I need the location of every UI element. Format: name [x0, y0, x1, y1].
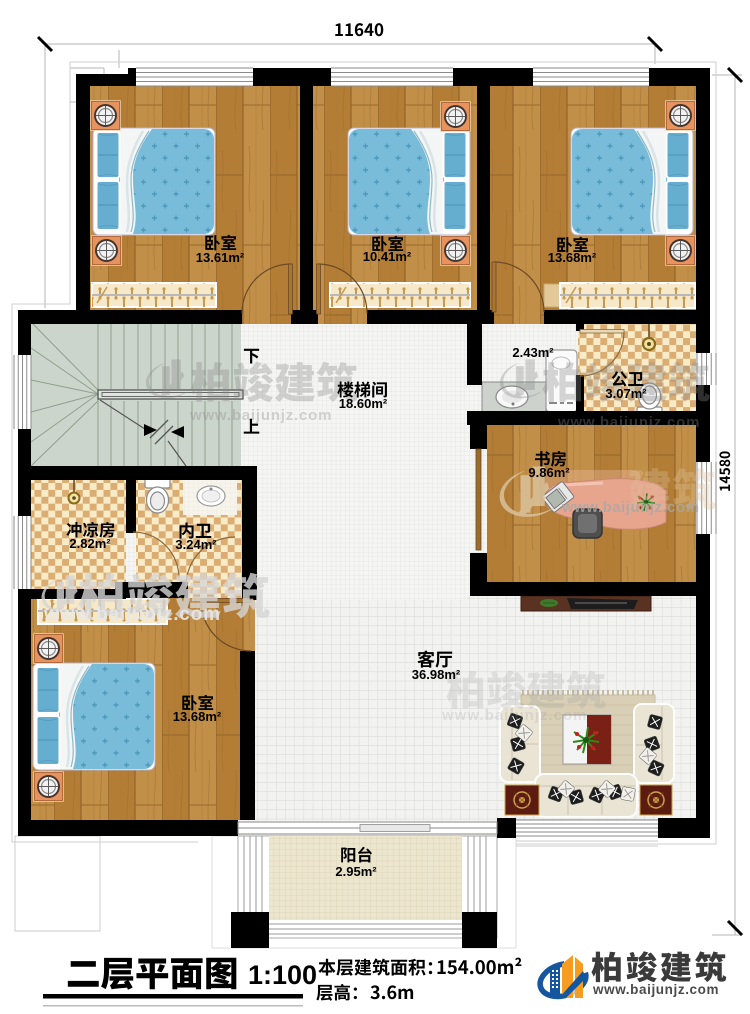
svg-text:2.82m²: 2.82m²	[69, 536, 111, 551]
svg-text:www.baijunjz.com: www.baijunjz.com	[557, 414, 700, 431]
svg-text:www.baijunjz.com: www.baijunjz.com	[189, 407, 332, 424]
svg-text:www.baijunjz.com: www.baijunjz.com	[592, 982, 719, 997]
svg-text:3.24m²: 3.24m²	[175, 537, 217, 552]
svg-text:www.baijunjz.com: www.baijunjz.com	[561, 499, 699, 516]
svg-text:18.60m²: 18.60m²	[339, 396, 388, 411]
svg-text:3.07m²: 3.07m²	[605, 386, 647, 401]
svg-text:9.86m²: 9.86m²	[528, 465, 570, 480]
svg-text:13.61m²: 13.61m²	[196, 250, 245, 265]
svg-text:13.68m²: 13.68m²	[548, 250, 597, 265]
svg-text:www.baijunjz.com: www.baijunjz.com	[441, 707, 587, 724]
svg-text:36.98m²: 36.98m²	[412, 667, 461, 682]
svg-text:10.41m²: 10.41m²	[363, 249, 412, 264]
svg-text:www.baijunjz.com: www.baijunjz.com	[43, 604, 221, 625]
svg-text:2.43m²: 2.43m²	[512, 345, 554, 360]
svg-text:1:100: 1:100	[248, 960, 317, 990]
svg-text:13.68m²: 13.68m²	[173, 709, 222, 724]
svg-text:2.95m²: 2.95m²	[335, 864, 377, 879]
